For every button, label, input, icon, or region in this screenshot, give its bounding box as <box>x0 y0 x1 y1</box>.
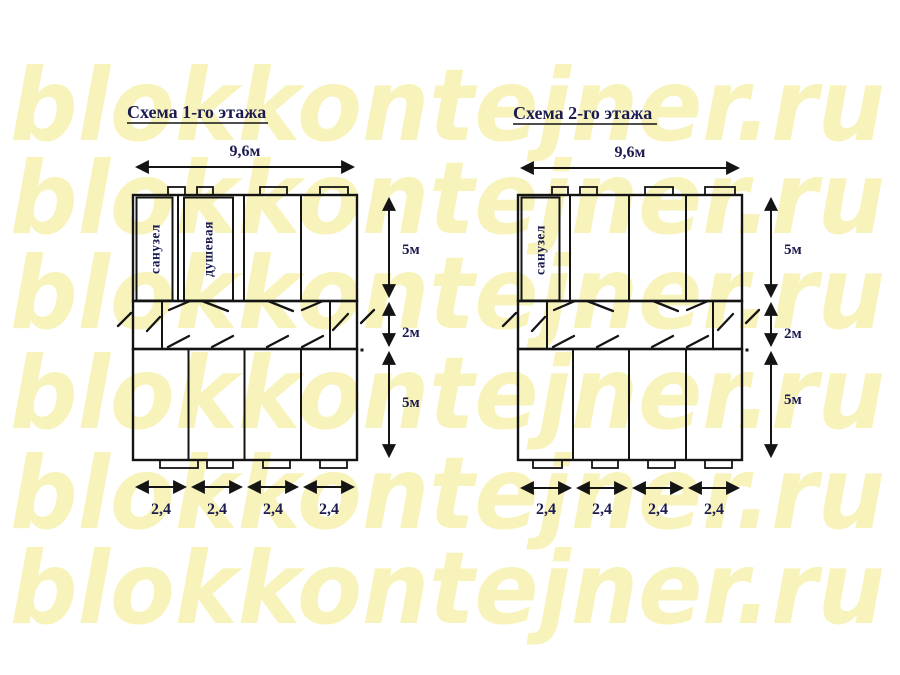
floor2-module-dim: 2,4 <box>592 501 612 518</box>
floor2-module-dim: 2,4 <box>704 501 724 518</box>
floor2-side-dim-mid: 2м <box>784 326 802 342</box>
floor1-side-dim-mid: 2м <box>402 325 420 341</box>
floor1-module-dim: 2,4 <box>151 501 171 518</box>
floor1-side-dim-top: 5м <box>402 242 420 258</box>
floor1-module-dim: 2,4 <box>263 501 283 518</box>
floor2-side-dim-bottom: 5м <box>784 392 802 408</box>
floorplan-canvas: blokkontejner.ru blokkontejner.ru blokko… <box>0 0 900 675</box>
floor2-width-dim: 9,6м <box>615 144 646 161</box>
floor1-module-dim: 2,4 <box>207 501 227 518</box>
watermark-layer: blokkontejner.ru blokkontejner.ru blokko… <box>10 47 885 647</box>
floor1-dushevaya-label: душевая <box>201 221 216 277</box>
floor2-side-dim-top: 5м <box>784 242 802 258</box>
scanned-floorplan-page: blokkontejner.ru blokkontejner.ru blokko… <box>0 0 900 675</box>
watermark-row: blokkontejner.ru <box>10 530 885 647</box>
floor1-width-dim: 9,6м <box>230 143 261 160</box>
floor1-module-dim: 2,4 <box>319 501 339 518</box>
floor1-dot <box>361 349 364 352</box>
floor2-dot <box>746 349 749 352</box>
floor1-side-dim-bottom: 5м <box>402 395 420 411</box>
floor2-module-dim: 2,4 <box>536 501 556 518</box>
floor2-title: Схема 2-го этажа <box>513 103 652 123</box>
floor2-module-dim: 2,4 <box>648 501 668 518</box>
floor1-sanuzel-label: санузел <box>148 224 163 274</box>
floor2-sanuzel-label: санузел <box>533 225 548 275</box>
floor1-title: Схема 1-го этажа <box>127 102 266 122</box>
